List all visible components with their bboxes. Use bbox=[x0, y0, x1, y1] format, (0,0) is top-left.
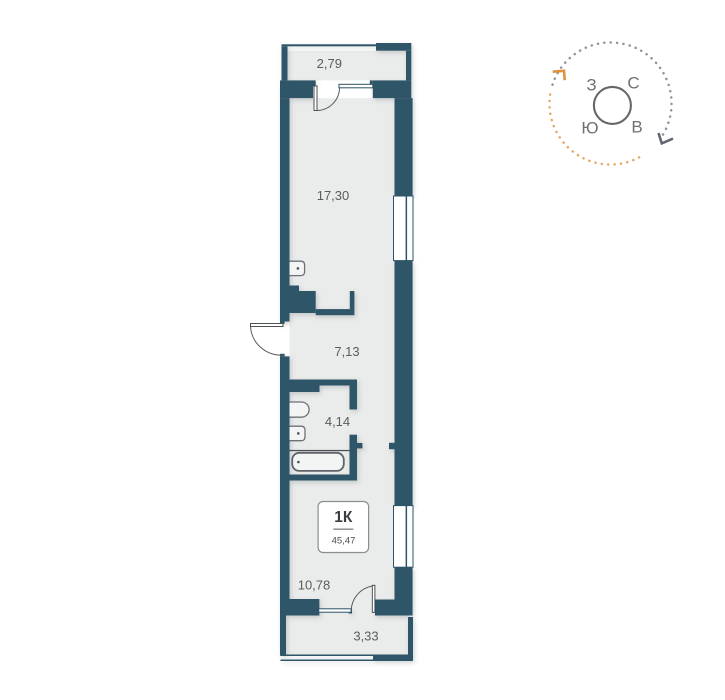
svg-text:1К: 1К bbox=[334, 509, 353, 526]
svg-text:17,30: 17,30 bbox=[317, 188, 350, 203]
svg-text:З: З bbox=[586, 76, 596, 95]
svg-text:45,47: 45,47 bbox=[332, 535, 356, 546]
svg-text:Ю: Ю bbox=[581, 119, 598, 138]
svg-text:4,14: 4,14 bbox=[325, 414, 350, 429]
svg-text:3,33: 3,33 bbox=[353, 629, 378, 644]
svg-text:С: С bbox=[627, 74, 639, 93]
svg-text:7,13: 7,13 bbox=[334, 344, 359, 359]
svg-text:2,79: 2,79 bbox=[317, 56, 342, 71]
svg-text:В: В bbox=[631, 118, 642, 137]
svg-text:10,78: 10,78 bbox=[298, 578, 331, 593]
